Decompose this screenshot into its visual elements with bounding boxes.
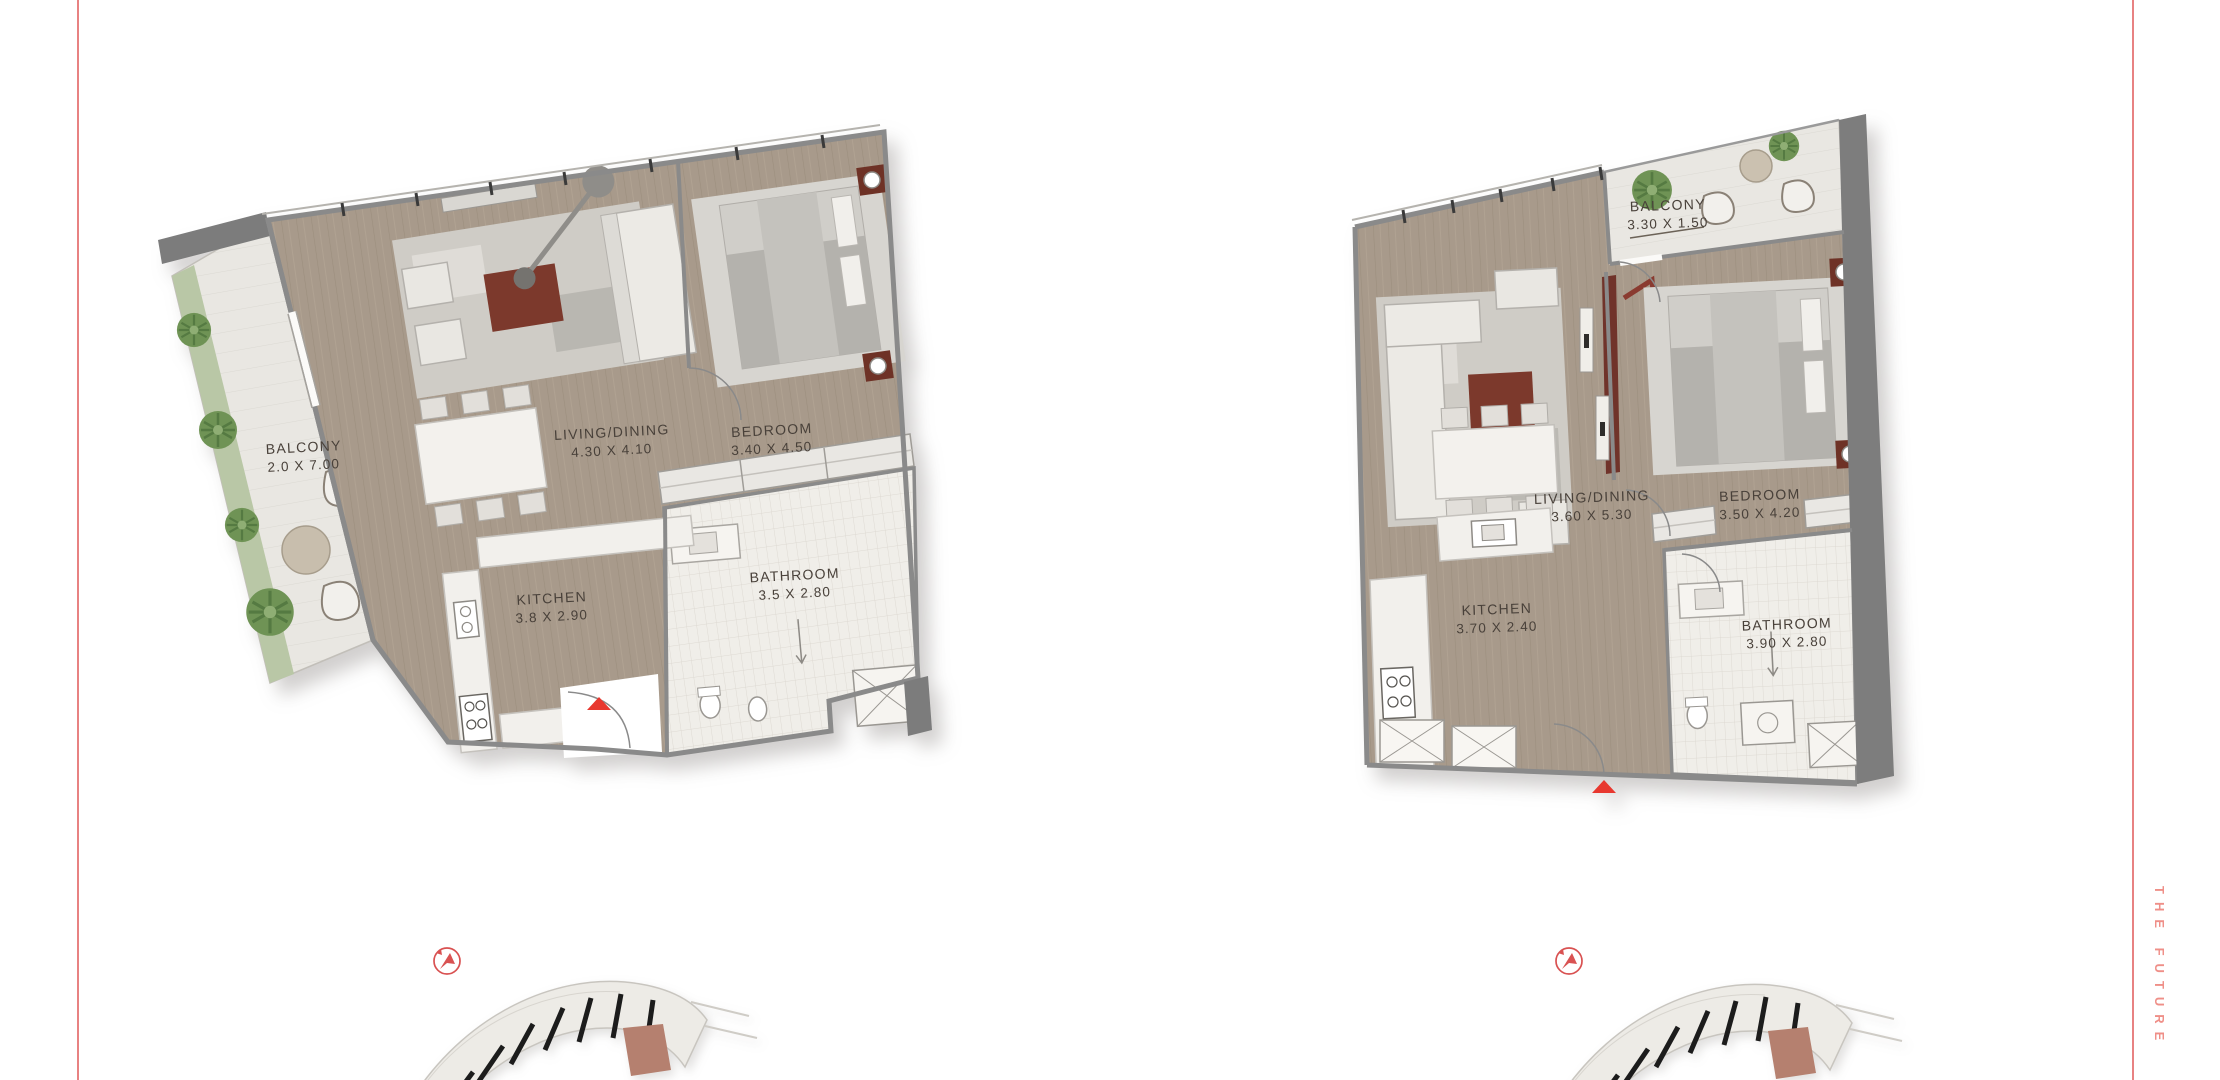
room-dims-bathroom: 3.90 X 2.80 <box>1746 634 1828 652</box>
room-label-kitchen: KITCHEN <box>1461 600 1532 618</box>
bathroom-left <box>664 468 921 755</box>
room-dims-balcony: 3.30 X 1.50 <box>1627 215 1709 233</box>
entry-marker-icon <box>1592 780 1616 793</box>
floor-plans-graphic: BALCONY 2.0 X 7.00 LIVING/DINING 4.30 X … <box>0 0 2220 1080</box>
floor-plan-right: BALCONY 3.30 X 1.50 LIVING/DINING 3.60 X… <box>1352 114 1894 793</box>
room-label-balcony: BALCONY <box>1630 196 1707 215</box>
compass-icon-left <box>434 948 460 974</box>
bed-set <box>1643 276 1865 475</box>
compass-icon-right <box>1556 948 1582 974</box>
entry-recess <box>560 674 662 758</box>
brochure-page: THE FUTURE <box>0 0 2220 1080</box>
room-dims-bedroom: 3.50 X 4.20 <box>1719 505 1801 523</box>
key-plan-right <box>1560 984 1902 1080</box>
floor-plan-left: BALCONY 2.0 X 7.00 LIVING/DINING 4.30 X … <box>158 125 932 758</box>
room-label-bedroom: BEDROOM <box>1719 486 1801 505</box>
room-dims-kitchen: 3.70 X 2.40 <box>1456 619 1538 637</box>
key-plan-left <box>415 981 757 1080</box>
room-dims-living: 3.60 X 5.30 <box>1551 507 1633 525</box>
room-label-bathroom: BATHROOM <box>1741 614 1832 633</box>
bathroom-right <box>1664 530 1862 782</box>
right-border-rule <box>2132 0 2134 1080</box>
left-border-rule <box>77 0 79 1080</box>
side-vertical-text: THE FUTURE <box>2152 886 2167 1080</box>
